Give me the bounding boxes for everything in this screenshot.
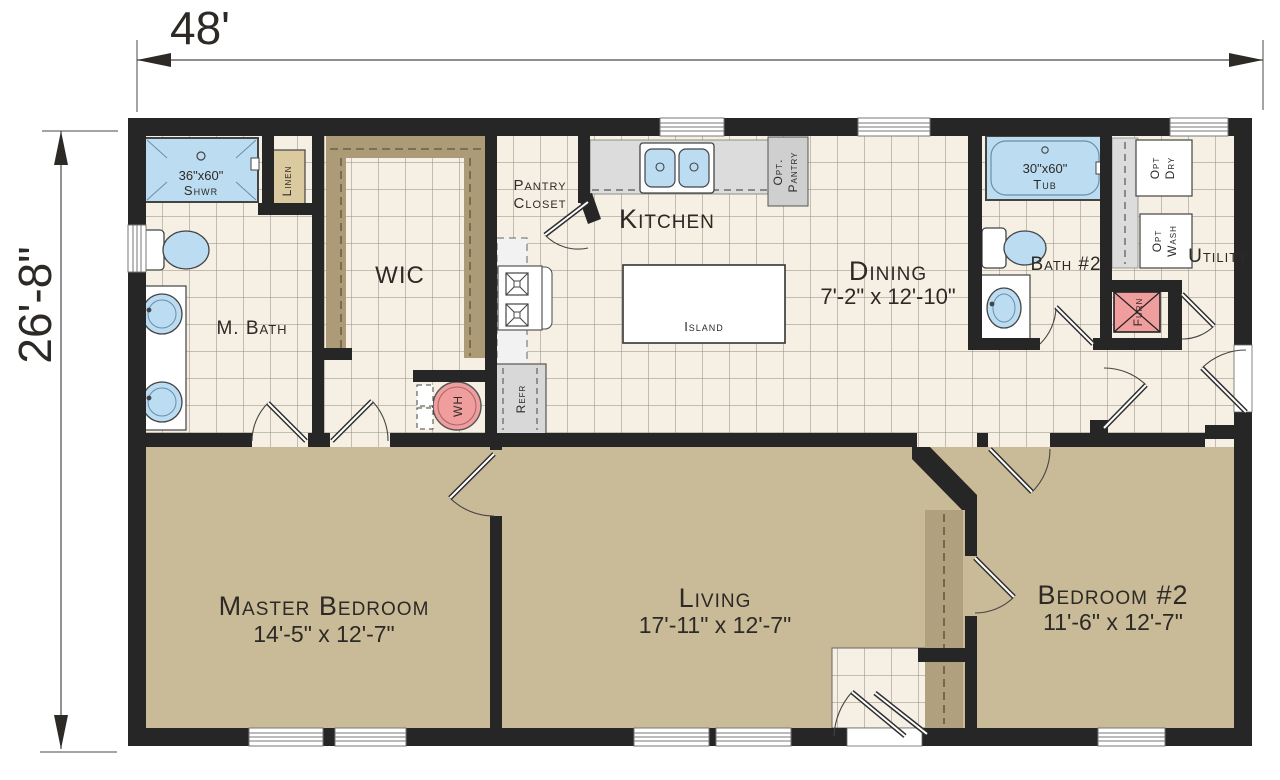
label-wic: WIC [375,262,425,289]
label-refr: Refr [514,385,528,414]
label-opt-dry: Opt Dry [1148,157,1177,180]
window-master-2 [335,728,406,746]
label-master-bedroom: Master Bedroom [219,591,430,621]
label-shower: Shwr [184,183,218,198]
toilet-master-bath [136,230,209,270]
label-living-size: 17'-11" x 12'-7" [639,612,792,638]
label-pantry-line2: Closet [514,195,567,212]
label-tub: Tub [1033,177,1056,192]
window-master-1 [249,728,323,746]
label-tub-size: 30"x60" [1023,161,1068,176]
label-furn: Furn [1131,298,1145,327]
svg-text:Wash: Wash [1165,225,1179,257]
svg-text:Opt: Opt [1148,157,1162,180]
svg-text:Opt.: Opt. [771,159,785,186]
wall-exterior-left [128,118,146,746]
label-pantry-line1: Pantry [513,177,566,194]
label-shower-size: 36"x60" [179,168,224,183]
window-living-2 [716,728,791,746]
kitchen-sink [640,143,714,193]
window-master-bath [128,225,146,272]
label-bath2: Bath #2 [1030,254,1101,275]
vanity-bath2 [980,275,1030,342]
wic-shelf-top [326,136,486,158]
svg-text:Opt: Opt [1150,230,1164,253]
label-bedroom2: Bedroom #2 [1037,580,1188,610]
label-wh: WH [451,395,465,417]
wic-shelf-left [326,158,346,358]
label-opt-wash: Opt Wash [1150,225,1179,257]
window-kitchen [660,118,724,136]
label-bedroom2-size: 11'-6" x 12'-7" [1043,609,1183,635]
floor-plan-page: M. Bath WIC Pantry Closet Kitchen Dining… [0,0,1280,775]
label-linen: Linen [280,166,294,197]
wic-shelf-right [464,158,486,358]
label-living: Living [679,583,752,613]
label-master-bedroom-size: 14'-5" x 12'-7" [253,621,394,647]
floor-plan-drawing: M. Bath WIC Pantry Closet Kitchen Dining… [0,0,1280,775]
svg-text:Dry: Dry [1163,157,1177,180]
label-dining: Dining [849,256,927,286]
wall-exterior-right [1234,118,1252,746]
dimension-depth: 26'-8" [9,246,61,363]
dimension-width: 48' [170,2,230,54]
window-bedroom2 [1098,728,1165,746]
label-utility: Utility [1188,246,1248,267]
label-island: Island [684,319,724,334]
window-dining [858,118,930,136]
range-stove [498,266,552,330]
svg-text:Pantry: Pantry [786,152,800,193]
label-dining-size: 7'-2" x 12'-10" [820,284,955,309]
window-living-1 [634,728,709,746]
window-utility [1170,118,1228,136]
label-master-bath: M. Bath [216,318,287,339]
label-kitchen: Kitchen [619,204,715,234]
